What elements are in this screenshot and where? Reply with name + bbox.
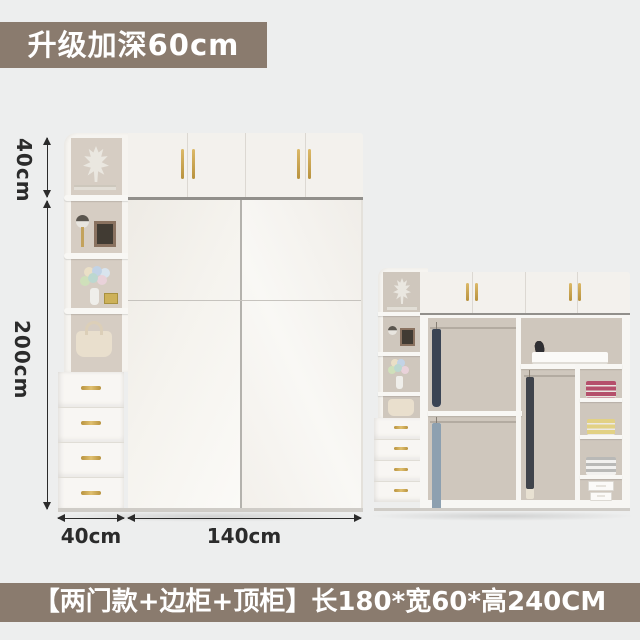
top-cabinet-handle bbox=[475, 283, 478, 301]
bottom-banner: 【两门款+边柜+顶柜】长180*宽60*高240CM bbox=[0, 583, 640, 622]
photo-frame-decor bbox=[400, 328, 415, 346]
handbag-decor bbox=[388, 399, 414, 416]
drawer-handle bbox=[394, 468, 408, 471]
door-seam bbox=[525, 272, 526, 313]
interior-divider bbox=[516, 318, 521, 500]
top-cabinet-handle bbox=[466, 283, 469, 301]
storage-box bbox=[590, 492, 612, 501]
garment bbox=[432, 423, 441, 511]
shelf bbox=[580, 435, 622, 439]
top-cabinet-handle bbox=[569, 283, 572, 301]
shirt bbox=[432, 329, 441, 407]
folded-towels-yellow bbox=[587, 419, 615, 435]
shelf bbox=[580, 398, 622, 402]
shoe-tray bbox=[532, 352, 608, 364]
shelf bbox=[580, 475, 622, 479]
drawer-handle bbox=[394, 447, 408, 450]
interior-divider bbox=[575, 364, 580, 500]
open-interior bbox=[420, 315, 630, 508]
folded-towels-pink bbox=[586, 381, 616, 398]
open-top-cabinet bbox=[420, 272, 630, 313]
books-decor bbox=[387, 306, 417, 310]
storage-box bbox=[588, 481, 614, 491]
hanging-pants-row bbox=[526, 377, 573, 503]
hanging-shirts-row bbox=[432, 329, 516, 409]
shelf bbox=[521, 364, 622, 369]
door-seam bbox=[472, 272, 473, 313]
folded-clothes-gray bbox=[586, 457, 616, 475]
pants bbox=[526, 377, 534, 489]
shelf bbox=[428, 411, 522, 416]
hanging-clothes-row bbox=[432, 423, 516, 509]
drawer-handle bbox=[394, 489, 408, 492]
product-image: 升级加深60cm bbox=[0, 0, 640, 640]
open-wardrobe-render bbox=[0, 0, 640, 640]
drawer-handle bbox=[394, 426, 408, 429]
floor-shadow bbox=[368, 511, 636, 521]
vase-decor bbox=[396, 376, 403, 389]
lamp-decor bbox=[388, 326, 397, 335]
balloon-bouquet-decor bbox=[394, 364, 402, 372]
top-cabinet-handle bbox=[578, 283, 581, 301]
